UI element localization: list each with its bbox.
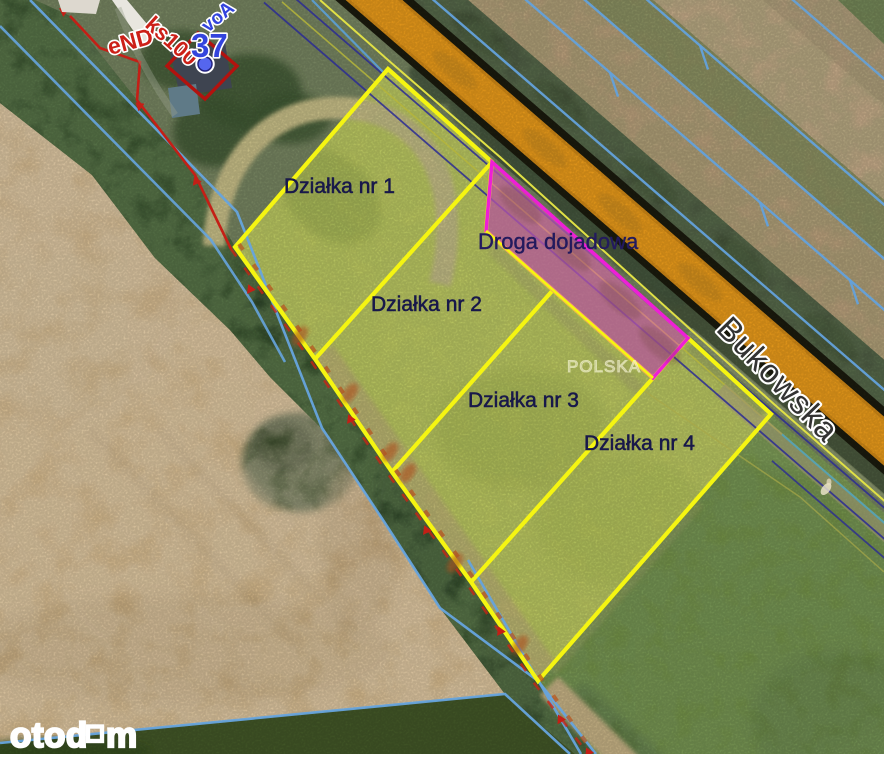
- svg-text:Droga dojadowa: Droga dojadowa: [478, 229, 639, 254]
- svg-text:Działka nr 3: Działka nr 3: [468, 389, 579, 412]
- svg-text:Działka nr 4: Działka nr 4: [584, 432, 695, 455]
- svg-text:Działka nr 1: Działka nr 1: [284, 175, 395, 198]
- svg-text:m: m: [106, 716, 137, 754]
- svg-text:Działka nr 2: Działka nr 2: [371, 293, 482, 316]
- svg-text:otod: otod: [10, 716, 88, 754]
- svg-text:POLSKA: POLSKA: [567, 357, 641, 376]
